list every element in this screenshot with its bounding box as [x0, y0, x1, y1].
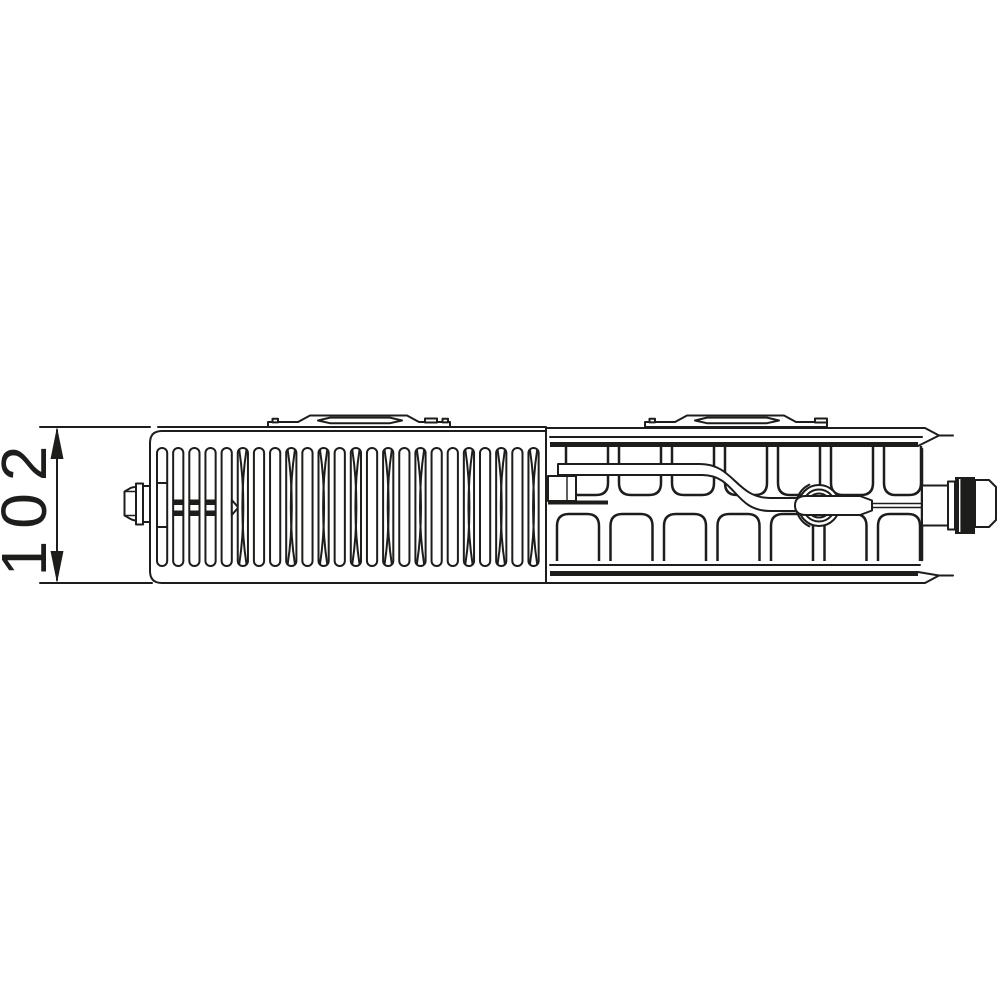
fin-slat	[448, 448, 458, 566]
fin-slat	[222, 448, 232, 566]
bracket-clip	[425, 419, 437, 423]
top-chamfer	[918, 436, 953, 447]
radiator-section-view	[546, 428, 996, 583]
radiator-drawing: 102	[0, 0, 1000, 1000]
fin-slat	[270, 448, 280, 566]
fin-mid-bar	[190, 511, 199, 517]
fin-mid-bar	[206, 500, 215, 506]
bracket-notch	[273, 419, 279, 423]
fin-slat	[157, 448, 167, 566]
fitting-thread-highlight	[959, 479, 960, 532]
fitting-neck	[922, 486, 948, 526]
fitting-flange	[948, 482, 955, 530]
bracket-notch	[650, 419, 656, 423]
fin-slat	[480, 448, 490, 566]
bottom-outer-line	[546, 576, 939, 584]
wall-bracket-tab-right	[645, 416, 827, 428]
fin-mid-bar	[206, 511, 215, 517]
convector-tooth-upper	[884, 446, 921, 495]
bracket-clip	[815, 419, 827, 423]
convector-tooth-lower	[664, 514, 706, 561]
fitting-thread-block	[955, 477, 975, 534]
dimension-label: 102	[0, 434, 60, 577]
fin-slat	[302, 448, 312, 566]
plug-flange	[136, 484, 143, 525]
fin-slat	[512, 448, 522, 566]
bottom-chamfer	[918, 572, 953, 576]
fin-mid-bar	[190, 500, 199, 506]
fin-slat	[432, 448, 442, 566]
wall-bracket-tab-left	[268, 416, 450, 428]
distributor-outline	[548, 476, 576, 501]
bracket-slot	[695, 418, 779, 424]
fin-slat	[335, 448, 345, 566]
fin-slat	[205, 448, 215, 566]
top-outer-line	[546, 428, 939, 436]
fin-mid-bar	[174, 500, 183, 506]
bracket-slot	[318, 418, 402, 424]
convector-tooth-upper	[831, 446, 873, 495]
valve-spindle-lines	[872, 504, 922, 508]
technical-drawing-canvas: 102	[0, 0, 1000, 1000]
bracket-notch	[443, 419, 449, 423]
convector-tooth-lower	[718, 514, 760, 561]
convector-tooth-lower	[878, 514, 920, 561]
plug-plate	[143, 486, 150, 522]
end-plug	[125, 484, 151, 525]
convector-tooth-lower	[611, 514, 653, 561]
convector-tooth-lower	[557, 514, 599, 561]
fin-mid-bar	[174, 511, 183, 517]
fin-slat	[399, 448, 409, 566]
fitting-cap	[975, 480, 996, 527]
convector-lower-fins	[557, 514, 920, 561]
thread-fitting	[922, 477, 996, 534]
fin-slat	[254, 448, 264, 566]
valve-outlet-pipe	[795, 496, 872, 515]
fin-slat	[189, 448, 199, 566]
fin-slat	[367, 448, 377, 566]
fin-slat	[173, 448, 183, 566]
